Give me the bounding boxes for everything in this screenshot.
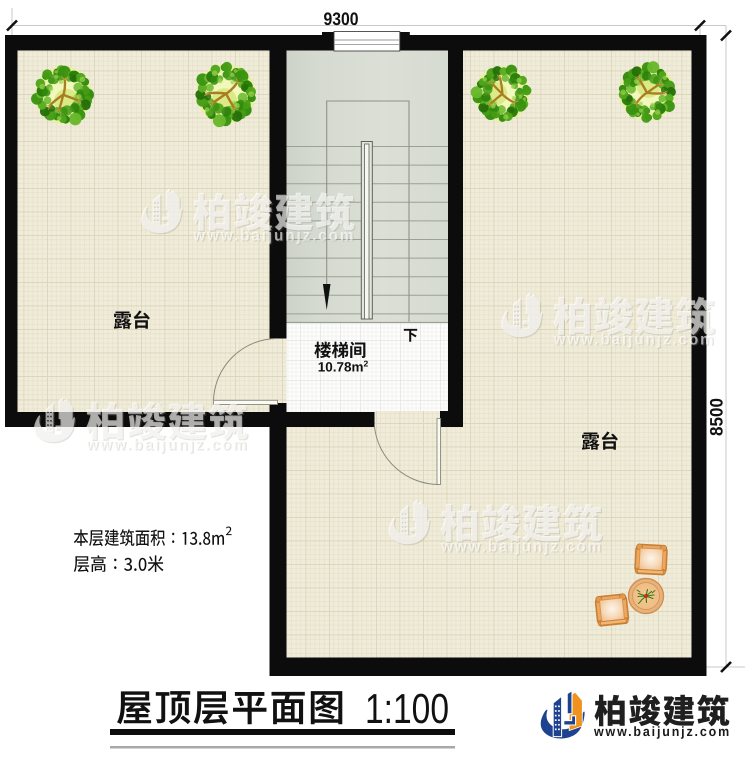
svg-text:9300: 9300 xyxy=(324,9,359,29)
svg-text:1:100: 1:100 xyxy=(365,685,449,732)
svg-text:10.78m2: 10.78m2 xyxy=(318,359,369,375)
svg-text:www.baijunjz.com: www.baijunjz.com xyxy=(593,724,731,739)
svg-text:8500: 8500 xyxy=(707,398,727,436)
